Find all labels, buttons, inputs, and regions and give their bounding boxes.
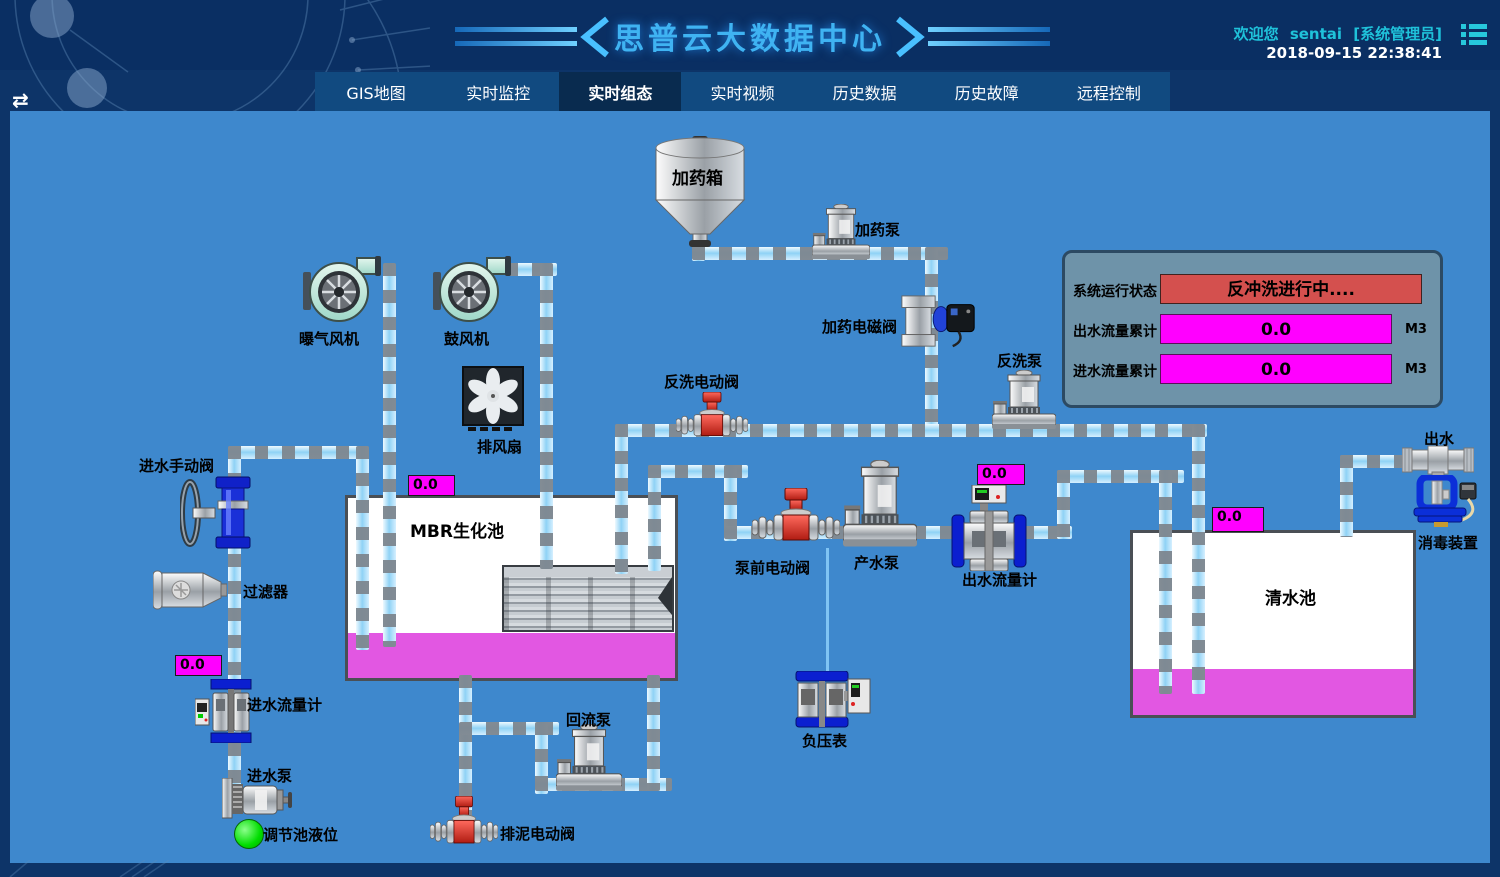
tab-history-fault[interactable]: 历史故障 [926, 72, 1048, 111]
membrane-module [502, 565, 674, 632]
backwash-valve-graphic[interactable] [676, 392, 748, 444]
sludge-valve-graphic[interactable] [430, 796, 498, 852]
process-diagram-canvas: 0.0 0.0 0.0 0.0 曝气风机 鼓风机 排风扇 加药箱 加药泵 加药电… [10, 111, 1490, 863]
backwash-pump-label: 反洗泵 [997, 350, 1042, 371]
exhaust-fan-label: 排风扇 [477, 436, 522, 457]
status-panel: 系统运行状态 反冲洗进行中.... 出水流量累计 0.0 M3 进水流量累计 0… [1062, 250, 1443, 408]
regulating-tank-level-indicator [234, 819, 264, 849]
tab-history-data[interactable]: 历史数据 [804, 72, 926, 111]
inlet-total-unit: M3 [1405, 362, 1427, 377]
inlet-flow-meter-label: 进水流量计 [247, 694, 322, 715]
return-pump-label: 回流泵 [566, 709, 611, 730]
tab-realtime-video[interactable]: 实时视频 [681, 72, 803, 111]
clean-water-level-value: 0.0 [1212, 507, 1264, 532]
dosing-solenoid-valve-label: 加药电磁阀 [822, 316, 897, 337]
clean-water-tank-liquid [1133, 669, 1413, 715]
signal-line [826, 548, 829, 678]
user-role: [系统管理员] [1353, 25, 1442, 43]
tab-realtime-diagram[interactable]: 实时组态 [559, 72, 681, 111]
pipe-segment [383, 263, 396, 647]
outlet-flow-meter-graphic[interactable] [950, 485, 1030, 571]
product-pump-label: 产水泵 [854, 552, 899, 573]
disinfection-device-label: 消毒装置 [1418, 532, 1478, 553]
outlet-total-label: 出水流量累计 [1073, 321, 1157, 341]
inlet-flow-value: 0.0 [175, 655, 222, 676]
dosing-tank-label: 加药箱 [672, 164, 723, 189]
inlet-total-label: 进水流量累计 [1073, 361, 1157, 381]
outlet-total-value: 0.0 [1160, 314, 1392, 344]
datetime-display: 2018-09-15 22:38:41 [1266, 44, 1442, 62]
page-title: 思普云大数据中心 [614, 14, 886, 58]
sludge-valve-label: 排泥电动阀 [500, 823, 575, 844]
mbr-tank-liquid [348, 633, 675, 678]
aeration-blower-label: 曝气风机 [299, 328, 359, 349]
filter-label: 过滤器 [243, 581, 288, 602]
mbr-tank-label: MBR生化池 [410, 517, 504, 542]
header-bar: 思普云大数据中心 欢迎您 sentai [系统管理员] 2018-09-15 2… [0, 0, 1500, 70]
return-pump-graphic[interactable] [556, 724, 622, 792]
username: sentai [1290, 25, 1342, 43]
dosing-pump-label: 加药泵 [855, 219, 900, 240]
welcome-prefix: 欢迎您 [1234, 25, 1279, 43]
run-status-label: 系统运行状态 [1073, 281, 1157, 301]
pipe-segment [615, 424, 628, 574]
tab-realtime-monitor[interactable]: 实时监控 [437, 72, 559, 111]
blower-graphic[interactable] [433, 256, 511, 322]
pipe-segment [356, 446, 369, 650]
outlet-flow-value: 0.0 [977, 464, 1025, 485]
menu-list-icon[interactable] [1461, 22, 1487, 46]
outlet-total-unit: M3 [1405, 322, 1427, 337]
dosing-solenoid-valve-graphic[interactable] [898, 294, 982, 350]
clean-water-tank [1130, 530, 1416, 718]
outlet-flow-meter-label: 出水流量计 [962, 569, 1037, 590]
backwash-valve-label: 反洗电动阀 [664, 371, 739, 392]
inlet-manual-valve-graphic[interactable] [180, 475, 258, 551]
prepump-valve-graphic[interactable] [752, 488, 840, 550]
clean-water-tank-label: 清水池 [1265, 584, 1316, 609]
pipe-segment [228, 446, 369, 459]
inlet-manual-valve-label: 进水手动阀 [139, 455, 214, 476]
prepump-valve-label: 泵前电动阀 [735, 557, 810, 578]
pipe-segment [1192, 424, 1205, 694]
pipe-segment [648, 465, 661, 571]
welcome-text: 欢迎您 sentai [系统管理员] [1228, 23, 1442, 44]
negative-pressure-gauge-label: 负压表 [802, 730, 847, 751]
pipe-segment [647, 675, 660, 791]
aeration-blower-graphic[interactable] [303, 256, 381, 322]
pipe-segment [1159, 470, 1172, 694]
exhaust-fan-graphic[interactable] [462, 366, 524, 432]
disinfection-device-graphic[interactable] [1412, 475, 1482, 529]
pipe-segment [540, 263, 553, 569]
outlet-label: 出水 [1424, 428, 1454, 449]
tab-gis-map[interactable]: GIS地图 [315, 72, 437, 111]
backwash-pump-graphic[interactable] [992, 370, 1056, 430]
regulating-tank-level-label: 调节池液位 [263, 824, 338, 845]
blower-label: 鼓风机 [444, 328, 489, 349]
inlet-pump-label: 进水泵 [247, 765, 292, 786]
dosing-tank-graphic[interactable] [652, 136, 748, 250]
inlet-total-value: 0.0 [1160, 354, 1392, 384]
title-decoration-left [455, 15, 615, 59]
tab-remote-control[interactable]: 远程控制 [1048, 72, 1170, 111]
collapse-arrows-icon[interactable]: ⇄ [12, 88, 29, 112]
product-pump-graphic[interactable] [843, 460, 917, 548]
title-decoration-right [890, 15, 1050, 59]
mbr-level-value: 0.0 [408, 475, 455, 496]
nav-bar: GIS地图 实时监控 实时组态 实时视频 历史数据 历史故障 远程控制 [315, 72, 1170, 111]
run-status-value: 反冲洗进行中.... [1160, 274, 1422, 304]
filter-graphic[interactable] [153, 567, 227, 613]
negative-pressure-gauge-graphic[interactable] [786, 671, 874, 729]
